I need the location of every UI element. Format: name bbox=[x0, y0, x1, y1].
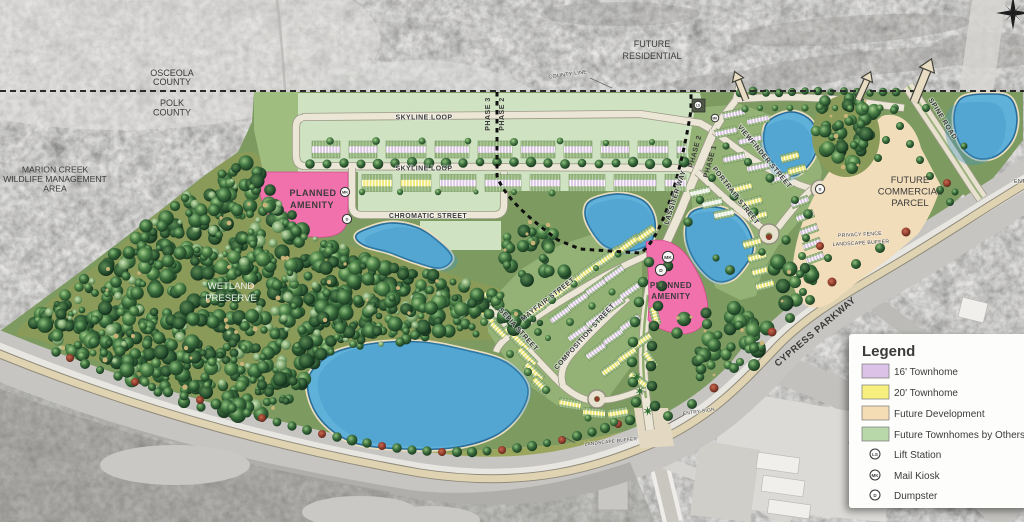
svg-text:Lift Station: Lift Station bbox=[894, 450, 941, 461]
svg-text:MARION CREEK: MARION CREEK bbox=[22, 165, 89, 175]
svg-text:Legend: Legend bbox=[862, 343, 915, 360]
svg-text:LS: LS bbox=[872, 452, 878, 457]
svg-text:Future Development: Future Development bbox=[894, 409, 985, 420]
svg-text:16' Townhome: 16' Townhome bbox=[894, 367, 958, 378]
svg-text:Mail Kiosk: Mail Kiosk bbox=[894, 471, 941, 482]
svg-text:MK: MK bbox=[713, 116, 719, 120]
svg-text:COUNTY: COUNTY bbox=[153, 108, 191, 118]
svg-text:AREA: AREA bbox=[43, 184, 67, 194]
svg-text:Dumpster: Dumpster bbox=[894, 491, 938, 502]
svg-text:SKYLINE LOOP: SKYLINE LOOP bbox=[396, 166, 453, 173]
svg-text:SKYLINE LOOP: SKYLINE LOOP bbox=[396, 115, 453, 122]
svg-text:MK: MK bbox=[872, 473, 880, 478]
svg-text:FUTURE: FUTURE bbox=[891, 175, 930, 186]
svg-text:MK: MK bbox=[342, 190, 348, 195]
svg-text:Future Townhomes by Others: Future Townhomes by Others bbox=[894, 430, 1024, 441]
svg-text:COUNTY: COUNTY bbox=[153, 77, 191, 87]
svg-text:CHROMATIC STREET: CHROMATIC STREET bbox=[389, 213, 468, 220]
svg-text:WETLAND: WETLAND bbox=[208, 281, 255, 292]
svg-text:LS: LS bbox=[696, 103, 700, 107]
svg-text:PHASE 3: PHASE 3 bbox=[485, 97, 492, 130]
svg-text:MK: MK bbox=[664, 255, 672, 261]
svg-text:D: D bbox=[819, 187, 822, 192]
svg-text:FUTURE: FUTURE bbox=[634, 39, 671, 49]
svg-text:PARCEL: PARCEL bbox=[891, 198, 928, 209]
svg-text:PLANNED: PLANNED bbox=[289, 188, 336, 198]
svg-text:COMMERCIAL: COMMERCIAL bbox=[878, 187, 942, 198]
svg-text:D: D bbox=[346, 217, 349, 222]
svg-text:PLANNED: PLANNED bbox=[650, 281, 692, 290]
svg-text:20' Townhome: 20' Townhome bbox=[894, 388, 958, 399]
svg-text:D: D bbox=[659, 268, 663, 274]
svg-text:POLK: POLK bbox=[160, 98, 184, 108]
svg-text:PRESERVE: PRESERVE bbox=[205, 293, 257, 304]
svg-text:AMENITY: AMENITY bbox=[290, 200, 334, 210]
svg-text:WILDLIFE MANAGEMENT: WILDLIFE MANAGEMENT bbox=[3, 174, 107, 184]
svg-text:PHASE 2: PHASE 2 bbox=[499, 97, 506, 130]
svg-text:AMENITY: AMENITY bbox=[651, 292, 691, 301]
svg-text:ENTRY: ENTRY bbox=[1014, 179, 1024, 185]
svg-text:RESIDENTIAL: RESIDENTIAL bbox=[622, 51, 681, 61]
